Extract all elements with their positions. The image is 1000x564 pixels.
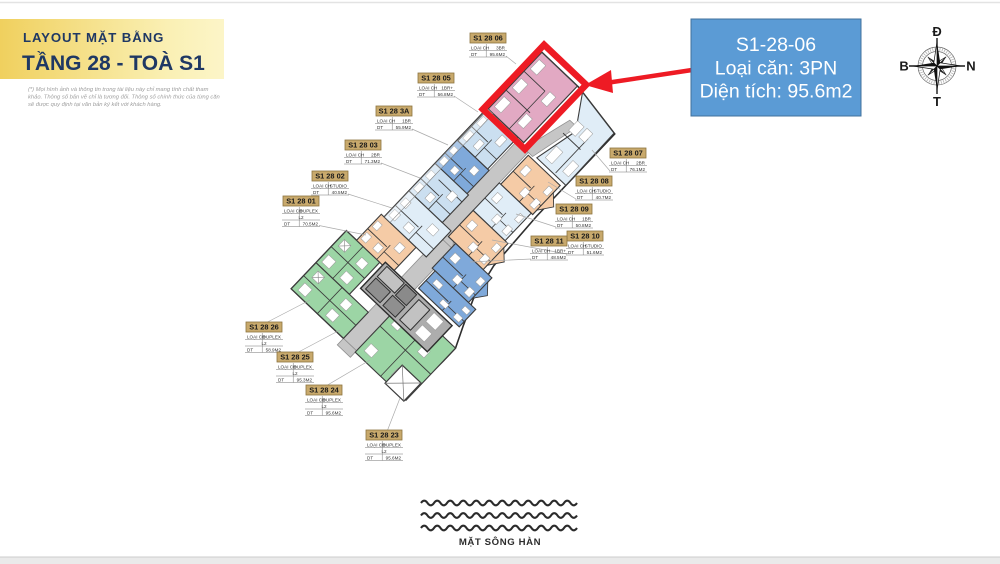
svg-text:1BR: 1BR [582, 216, 592, 221]
svg-text:DT: DT [278, 377, 284, 382]
svg-text:Loại căn: 3PN: Loại căn: 3PN [715, 58, 838, 80]
svg-text:LAYOUT MẶT BẰNG: LAYOUT MẶT BẰNG [23, 30, 164, 45]
svg-text:DT: DT [419, 92, 425, 97]
svg-text:DT: DT [471, 52, 477, 57]
svg-text:DT: DT [611, 167, 617, 172]
svg-text:S1 28 23: S1 28 23 [369, 431, 399, 440]
svg-text:DT: DT [284, 221, 290, 226]
svg-text:40.7M2: 40.7M2 [596, 195, 612, 200]
svg-text:STUDIO: STUDIO [330, 183, 348, 188]
svg-text:70.5M2: 70.5M2 [303, 221, 319, 226]
svg-text:DT: DT [247, 347, 253, 352]
svg-text:S1 28 3A: S1 28 3A [379, 107, 410, 116]
svg-text:S1 28 03: S1 28 03 [348, 141, 378, 150]
svg-text:STUDIO: STUDIO [594, 188, 612, 193]
svg-text:B: B [899, 59, 908, 74]
svg-text:L2: L2 [261, 341, 267, 346]
svg-text:55.9M2: 55.9M2 [396, 125, 412, 130]
svg-text:LOẠI CH: LOẠI CH [471, 45, 489, 50]
svg-text:LOẠI CH: LOẠI CH [611, 160, 629, 165]
svg-text:1BR+: 1BR+ [554, 248, 566, 253]
svg-text:76.1M2: 76.1M2 [630, 167, 646, 172]
svg-text:DT: DT [577, 195, 583, 200]
svg-text:S1 28 24: S1 28 24 [309, 386, 339, 395]
svg-text:S1 28 09: S1 28 09 [559, 205, 589, 214]
svg-text:DT: DT [313, 190, 319, 195]
svg-text:DT: DT [377, 125, 383, 130]
svg-text:50.8M2: 50.8M2 [576, 223, 592, 228]
svg-text:LOẠI CH: LOẠI CH [557, 216, 575, 221]
svg-text:2BR: 2BR [371, 152, 381, 157]
svg-text:DT: DT [557, 223, 563, 228]
svg-text:S1 28 10: S1 28 10 [570, 232, 600, 241]
svg-text:1BR: 1BR [402, 118, 412, 123]
svg-text:DUPLEX: DUPLEX [323, 397, 341, 402]
svg-text:S1 28 08: S1 28 08 [579, 177, 609, 186]
svg-text:95.6M2: 95.6M2 [326, 410, 342, 415]
svg-text:L2: L2 [298, 215, 304, 220]
svg-text:L2: L2 [381, 449, 387, 454]
svg-text:LOẠI CH: LOẠI CH [377, 118, 395, 123]
svg-text:S1 28 07: S1 28 07 [613, 149, 643, 158]
svg-text:S1 28 11: S1 28 11 [534, 237, 563, 246]
svg-text:51.6M2: 51.6M2 [587, 250, 603, 255]
svg-text:khảo. Thông số bản vẽ chỉ là t: khảo. Thông số bản vẽ chỉ là tương đối. … [28, 94, 220, 101]
svg-text:40.5M2: 40.5M2 [332, 190, 348, 195]
svg-text:2BR: 2BR [636, 160, 646, 165]
svg-text:DUPLEX: DUPLEX [294, 364, 312, 369]
svg-text:LOẠI CH: LOẠI CH [313, 183, 331, 188]
svg-text:MẶT SÔNG HÀN: MẶT SÔNG HÀN [459, 536, 541, 548]
svg-text:71.3M2: 71.3M2 [365, 159, 381, 164]
svg-text:DT: DT [568, 250, 574, 255]
svg-text:S1-28-06: S1-28-06 [736, 34, 816, 56]
svg-text:LOẠI CH: LOẠI CH [568, 243, 586, 248]
svg-text:1BR+: 1BR+ [441, 85, 453, 90]
svg-text:DT: DT [367, 455, 373, 460]
svg-text:DT: DT [346, 159, 352, 164]
svg-text:DT: DT [307, 410, 313, 415]
svg-text:L2: L2 [321, 404, 327, 409]
svg-text:95.6M2: 95.6M2 [386, 455, 402, 460]
svg-text:STUDIO: STUDIO [585, 243, 603, 248]
svg-text:DUPLEX: DUPLEX [383, 442, 401, 447]
svg-text:S1 28 06: S1 28 06 [473, 34, 503, 43]
svg-text:DT: DT [532, 255, 538, 260]
svg-text:N: N [966, 59, 975, 74]
svg-text:LOẠI CH: LOẠI CH [577, 188, 595, 193]
svg-text:LOẠI CH: LOẠI CH [346, 152, 364, 157]
svg-text:3BR: 3BR [496, 45, 506, 50]
svg-text:(*) Mọi hình ảnh và thông tin: (*) Mọi hình ảnh và thông tin trong tài … [28, 86, 209, 93]
svg-text:S1 28 26: S1 28 26 [249, 323, 279, 332]
svg-text:95.3M2: 95.3M2 [297, 377, 313, 382]
svg-text:S1 28 05: S1 28 05 [421, 74, 451, 83]
svg-text:S1 28 25: S1 28 25 [280, 353, 310, 362]
svg-text:LOẠI CH: LOẠI CH [419, 85, 437, 90]
svg-text:LOẠI CH: LOẠI CH [532, 248, 550, 253]
svg-text:Đ: Đ [932, 24, 941, 39]
svg-text:48.5M2: 48.5M2 [551, 255, 567, 260]
svg-text:56.8M2: 56.8M2 [438, 92, 454, 97]
svg-text:TẦNG 28 - TOÀ S1: TẦNG 28 - TOÀ S1 [22, 52, 205, 75]
svg-text:S1 28 01: S1 28 01 [286, 197, 316, 206]
svg-text:95.6M2: 95.6M2 [490, 52, 506, 57]
svg-text:T: T [933, 94, 941, 109]
svg-text:sẽ được quy định tại văn bản k: sẽ được quy định tại văn bản ký kết với … [28, 101, 162, 108]
svg-text:Diện tích: 95.6m2: Diện tích: 95.6m2 [700, 81, 853, 103]
svg-text:DUPLEX: DUPLEX [263, 334, 281, 339]
svg-text:L2: L2 [292, 371, 298, 376]
svg-text:DUPLEX: DUPLEX [300, 208, 318, 213]
svg-text:S1 28 02: S1 28 02 [315, 172, 345, 181]
